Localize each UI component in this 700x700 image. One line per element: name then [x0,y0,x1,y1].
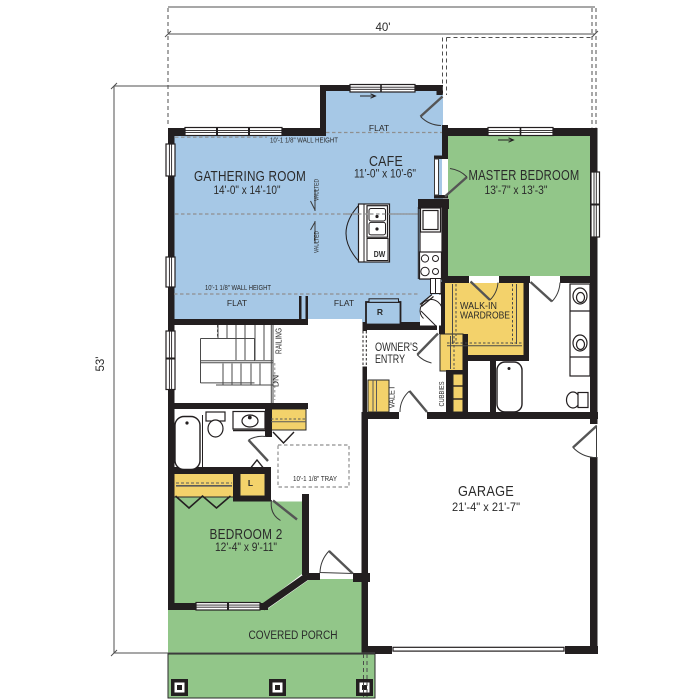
svg-text:RAILING: RAILING [274,328,284,354]
svg-text:10'-1 1/8" TRAY: 10'-1 1/8" TRAY [293,476,337,483]
svg-text:R: R [377,307,383,317]
svg-text:CUBBIES: CUBBIES [437,382,446,407]
svg-text:FLAT: FLAT [227,298,247,308]
svg-text:10'-1 1/8" WALL HEIGHT: 10'-1 1/8" WALL HEIGHT [270,138,339,145]
svg-text:12'-4" x 9'-11": 12'-4" x 9'-11" [215,540,277,554]
svg-text:MASTER BEDROOM: MASTER BEDROOM [469,167,580,184]
svg-text:L: L [248,478,253,488]
svg-text:40': 40' [376,22,391,34]
svg-text:VALET: VALET [387,386,397,409]
svg-text:ENTRY: ENTRY [375,352,405,366]
svg-text:21'-4" x 21'-7": 21'-4" x 21'-7" [452,500,520,514]
svg-text:VAULTED: VAULTED [314,231,321,253]
svg-text:WARDROBE: WARDROBE [460,310,510,322]
svg-text:FLAT: FLAT [369,123,389,133]
svg-text:10'-1 1/8" WALL HEIGHT: 10'-1 1/8" WALL HEIGHT [205,285,272,292]
svg-text:14'-0" x 14'-10": 14'-0" x 14'-10" [214,183,281,197]
svg-text:DW: DW [374,249,386,259]
svg-text:FLAT: FLAT [334,298,354,308]
svg-text:DN: DN [271,375,281,387]
svg-text:13'-7" x 13'-3": 13'-7" x 13'-3" [485,183,548,197]
svg-text:53': 53' [95,357,107,372]
svg-text:GARAGE: GARAGE [458,483,514,500]
svg-text:VAULTED: VAULTED [314,179,321,201]
svg-text:COVERED PORCH: COVERED PORCH [249,630,338,642]
svg-text:11'-0" x 10'-6": 11'-0" x 10'-6" [354,167,416,181]
